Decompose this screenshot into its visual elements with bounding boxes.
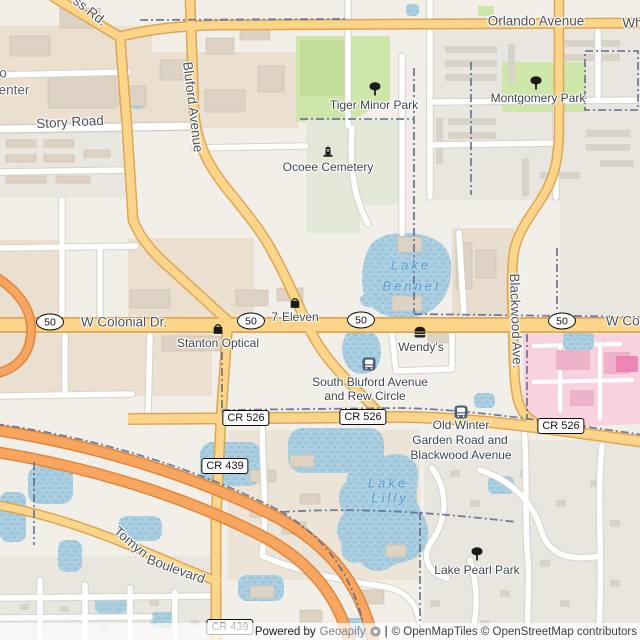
attribution-separator: | [385, 626, 388, 638]
map-canvas [0, 0, 640, 640]
geoapify-link[interactable]: Geoapify [320, 626, 366, 638]
attribution-credits[interactable]: © OpenMapTiles © OpenStreetMap contribut… [392, 626, 637, 638]
attribution-bar: Powered by Geoapify | © OpenMapTiles © O… [0, 623, 640, 640]
map-viewport[interactable]: 50505050CR 526CR 526CR 526CR 439CR 439 s… [0, 0, 640, 640]
story-road [0, 126, 192, 129]
geoapify-logo-icon [370, 626, 381, 637]
attribution-powered-by: Powered by [255, 626, 316, 638]
